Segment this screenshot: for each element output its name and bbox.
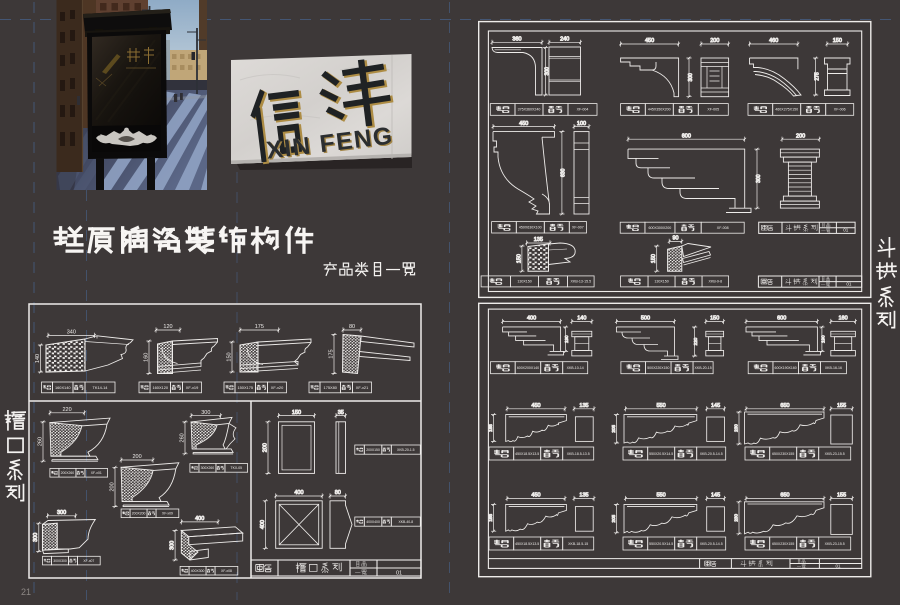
svg-text:375X360X240: 375X360X240 — [518, 108, 541, 112]
svg-text:445X350X200: 445X350X200 — [648, 108, 671, 112]
svg-text:80: 80 — [335, 490, 341, 496]
svg-text:200: 200 — [109, 482, 115, 491]
svg-text:TKX-05: TKX-05 — [231, 466, 243, 470]
svg-text:450X630X100: 450X630X100 — [519, 226, 542, 230]
svg-text:XF-x19: XF-x19 — [186, 385, 199, 390]
svg-text:400: 400 — [195, 516, 204, 522]
svg-text:450: 450 — [531, 403, 540, 409]
svg-text:XKB-10-14: XKB-10-14 — [567, 366, 584, 370]
svg-text:260: 260 — [37, 437, 43, 446]
svg-text:150: 150 — [516, 254, 522, 263]
svg-text:300X260: 300X260 — [201, 466, 215, 470]
svg-text:230: 230 — [733, 514, 738, 522]
svg-text:240: 240 — [560, 37, 569, 43]
svg-text:XF-x09: XF-x09 — [162, 512, 173, 516]
svg-text:XKB-20.5-14.5: XKB-20.5-14.5 — [700, 452, 723, 456]
svg-text:550X20.5X14.5: 550X20.5X14.5 — [649, 542, 673, 546]
svg-text:460: 460 — [769, 38, 778, 44]
svg-text:130X150: 130X150 — [517, 280, 531, 284]
svg-text:01: 01 — [836, 563, 841, 568]
svg-text:205: 205 — [611, 514, 616, 522]
svg-text:600: 600 — [682, 133, 691, 139]
svg-text:450: 450 — [531, 493, 540, 499]
svg-text:220: 220 — [693, 337, 698, 345]
svg-text:155: 155 — [837, 493, 846, 499]
svg-text:550: 550 — [657, 403, 666, 409]
svg-text:150X175: 150X175 — [237, 385, 253, 390]
svg-text:275: 275 — [814, 72, 820, 81]
svg-text:145: 145 — [711, 493, 720, 499]
svg-text:XKB-9-8: XKB-9-8 — [709, 280, 723, 284]
svg-text:200: 200 — [262, 443, 268, 452]
svg-text:600X190X160: 600X190X160 — [775, 366, 797, 370]
svg-text:135: 135 — [579, 403, 588, 409]
svg-text:220: 220 — [63, 407, 72, 413]
svg-text:550X20.5X14.5: 550X20.5X14.5 — [649, 452, 673, 456]
svg-text:135: 135 — [579, 493, 588, 499]
svg-text:600: 600 — [777, 316, 786, 322]
svg-text:100: 100 — [577, 121, 586, 127]
svg-text:150: 150 — [226, 352, 232, 361]
svg-text:160X140: 160X140 — [55, 385, 71, 390]
svg-text:XF-x01: XF-x01 — [91, 471, 102, 475]
svg-text:205: 205 — [611, 425, 616, 433]
svg-text:120: 120 — [163, 324, 172, 330]
svg-text:XKB-18.5-15: XKB-18.5-15 — [568, 542, 588, 546]
svg-text:450: 450 — [645, 38, 654, 44]
svg-text:XKB-18.5-13.5: XKB-18.5-13.5 — [567, 452, 590, 456]
svg-text:650X230X155: 650X230X155 — [772, 542, 794, 546]
svg-text:300: 300 — [170, 541, 176, 550]
svg-text:200X260: 200X260 — [61, 471, 75, 475]
svg-text:XF-007: XF-007 — [572, 226, 584, 230]
svg-text:260: 260 — [179, 433, 185, 442]
svg-text:600X300X200: 600X300X200 — [649, 226, 672, 230]
svg-text:XKB-13-15.5: XKB-13-15.5 — [571, 280, 592, 284]
svg-text:200X200: 200X200 — [132, 512, 146, 516]
svg-text:450: 450 — [519, 121, 528, 127]
svg-text:300: 300 — [756, 174, 762, 183]
svg-text:460X275X150: 460X275X150 — [775, 108, 798, 112]
svg-text:XKB-20-1.5: XKB-20-1.5 — [397, 448, 415, 452]
svg-text:XF-x07: XF-x07 — [83, 559, 94, 563]
svg-text:155: 155 — [837, 403, 846, 409]
svg-text:XKB-20-15: XKB-20-15 — [695, 366, 712, 370]
svg-text:650X230X155: 650X230X155 — [772, 452, 794, 456]
svg-text:XKB-23-15.5: XKB-23-15.5 — [825, 542, 845, 546]
svg-text:300: 300 — [688, 73, 694, 82]
svg-text:140: 140 — [35, 354, 41, 363]
svg-text:80: 80 — [349, 324, 355, 330]
svg-text:500: 500 — [641, 316, 650, 322]
svg-text:200: 200 — [132, 454, 141, 460]
svg-text:35: 35 — [338, 410, 344, 416]
svg-text:160: 160 — [143, 353, 149, 362]
svg-text:01: 01 — [396, 571, 402, 577]
svg-text:150: 150 — [651, 254, 657, 263]
svg-text:200: 200 — [710, 38, 719, 44]
svg-text:200: 200 — [796, 133, 805, 139]
svg-text:230: 230 — [733, 424, 738, 432]
svg-text:XKB-20.5-14.5: XKB-20.5-14.5 — [700, 542, 723, 546]
svg-text:400X300: 400X300 — [191, 569, 205, 573]
svg-text:550: 550 — [657, 493, 666, 499]
svg-text:90: 90 — [672, 236, 678, 242]
svg-text:145: 145 — [711, 403, 720, 409]
svg-text:400: 400 — [260, 520, 266, 529]
svg-text:200X150: 200X150 — [366, 448, 380, 452]
svg-text:190: 190 — [564, 335, 569, 343]
svg-text:360: 360 — [512, 37, 521, 43]
svg-text:21: 21 — [21, 587, 31, 597]
svg-text:XF-x21: XF-x21 — [356, 385, 369, 390]
svg-text:500X220X150: 500X220X150 — [647, 366, 669, 370]
svg-text:185: 185 — [488, 514, 493, 522]
svg-text:185: 185 — [488, 424, 493, 432]
svg-text:135: 135 — [534, 237, 543, 243]
svg-text:400: 400 — [294, 490, 303, 496]
svg-text:150: 150 — [292, 410, 301, 416]
svg-text:140: 140 — [577, 316, 586, 322]
svg-text:XF-008: XF-008 — [717, 226, 729, 230]
svg-text:150: 150 — [833, 38, 842, 44]
svg-text:400X400: 400X400 — [366, 520, 380, 524]
svg-text:01: 01 — [843, 228, 849, 233]
svg-text:XKB-16-16: XKB-16-16 — [825, 366, 842, 370]
svg-text:XF-006: XF-006 — [834, 108, 846, 112]
svg-text:XKB-40-8: XKB-40-8 — [398, 520, 413, 524]
svg-text:160X120: 160X120 — [152, 385, 168, 390]
svg-text:400: 400 — [527, 316, 536, 322]
svg-text:150: 150 — [710, 316, 719, 322]
svg-text:175X80: 175X80 — [324, 385, 338, 390]
svg-text:130X150: 130X150 — [654, 280, 668, 284]
svg-text:300: 300 — [201, 410, 210, 416]
svg-text:XF-004: XF-004 — [577, 108, 589, 112]
svg-text:XF-005: XF-005 — [707, 108, 719, 112]
svg-text:450X18.5X13.5: 450X18.5X13.5 — [515, 542, 539, 546]
svg-text:XF-x08: XF-x08 — [221, 569, 232, 573]
svg-text:650: 650 — [780, 493, 789, 499]
svg-text:300X300: 300X300 — [53, 559, 67, 563]
svg-text:175: 175 — [255, 324, 264, 330]
svg-text:600X200X140: 600X200X140 — [517, 366, 539, 370]
svg-text:XF-x20: XF-x20 — [271, 385, 284, 390]
svg-text:01: 01 — [846, 281, 852, 286]
svg-text:160: 160 — [839, 316, 848, 322]
svg-text:450X18.5X13.5: 450X18.5X13.5 — [515, 452, 539, 456]
svg-text:340: 340 — [67, 330, 76, 336]
svg-text:190: 190 — [821, 335, 826, 343]
svg-text:175: 175 — [328, 349, 334, 358]
svg-text:300: 300 — [57, 510, 66, 516]
svg-text:300: 300 — [33, 533, 39, 542]
svg-text:650: 650 — [780, 403, 789, 409]
svg-text:TK14-14: TK14-14 — [93, 385, 109, 390]
svg-text:XKB-23-15.5: XKB-23-15.5 — [825, 452, 845, 456]
svg-text:630: 630 — [561, 168, 567, 177]
